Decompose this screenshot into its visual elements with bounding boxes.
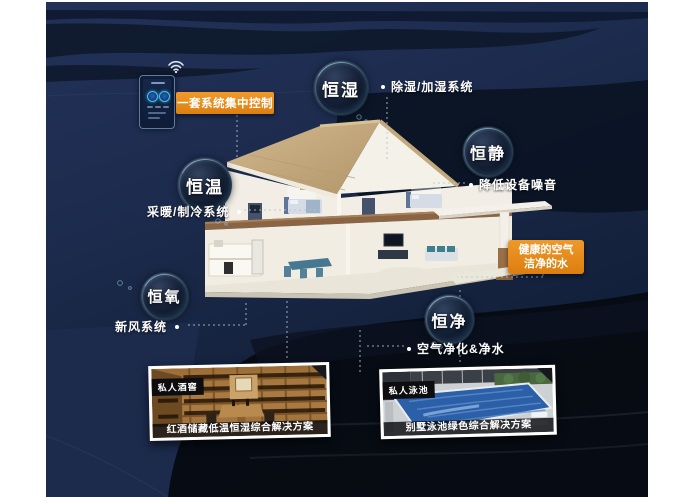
poster-page: 一套系统集中控制 健康的空气 洁净的水 恒湿 恒静 恒温 恒氧 恒净 除湿/加湿… — [0, 0, 700, 497]
control-phone — [139, 75, 175, 129]
feature-desc-oxygen: 新风系统 — [115, 318, 179, 335]
feature-bubble-quiet: 恒静 — [463, 127, 513, 177]
feature-bubble-humidity: 恒湿 — [314, 61, 368, 115]
photo-caption: 红酒储藏低温恒湿综合解决方案 — [152, 420, 327, 438]
corner-fold — [537, 368, 552, 383]
central-control-banner: 一套系统集中控制 — [176, 92, 274, 114]
pool-photo: 私人泳池 别墅泳池绿色综合解决方案 — [379, 365, 557, 440]
photo-tag: 私人酒窖 — [151, 378, 203, 396]
dial-icon — [159, 91, 170, 102]
wine-cellar-photo: 私人酒窖 红酒储藏低温恒湿综合解决方案 — [148, 362, 331, 441]
feature-desc-temperature: 采暖/制冷系统 — [147, 203, 241, 220]
feature-desc-purity: 空气净化&净水 — [407, 340, 505, 357]
highlight-line1: 健康的空气 — [510, 243, 582, 257]
dial-icon — [147, 91, 158, 102]
feature-desc-humidity: 除湿/加湿系统 — [381, 78, 473, 95]
phone-screen — [143, 79, 171, 125]
corner-fold — [311, 365, 326, 380]
highlight-box: 健康的空气 洁净的水 — [508, 240, 584, 274]
photo-tag: 私人泳池 — [382, 381, 434, 399]
feature-bubble-purity: 恒净 — [425, 295, 474, 344]
feature-desc-quiet: 降低设备噪音 — [469, 176, 557, 193]
wifi-icon — [167, 58, 185, 74]
highlight-line2: 洁净的水 — [510, 257, 582, 271]
feature-bubble-oxygen: 恒氧 — [141, 273, 188, 320]
photo-caption: 别墅泳池绿色综合解决方案 — [384, 418, 554, 436]
